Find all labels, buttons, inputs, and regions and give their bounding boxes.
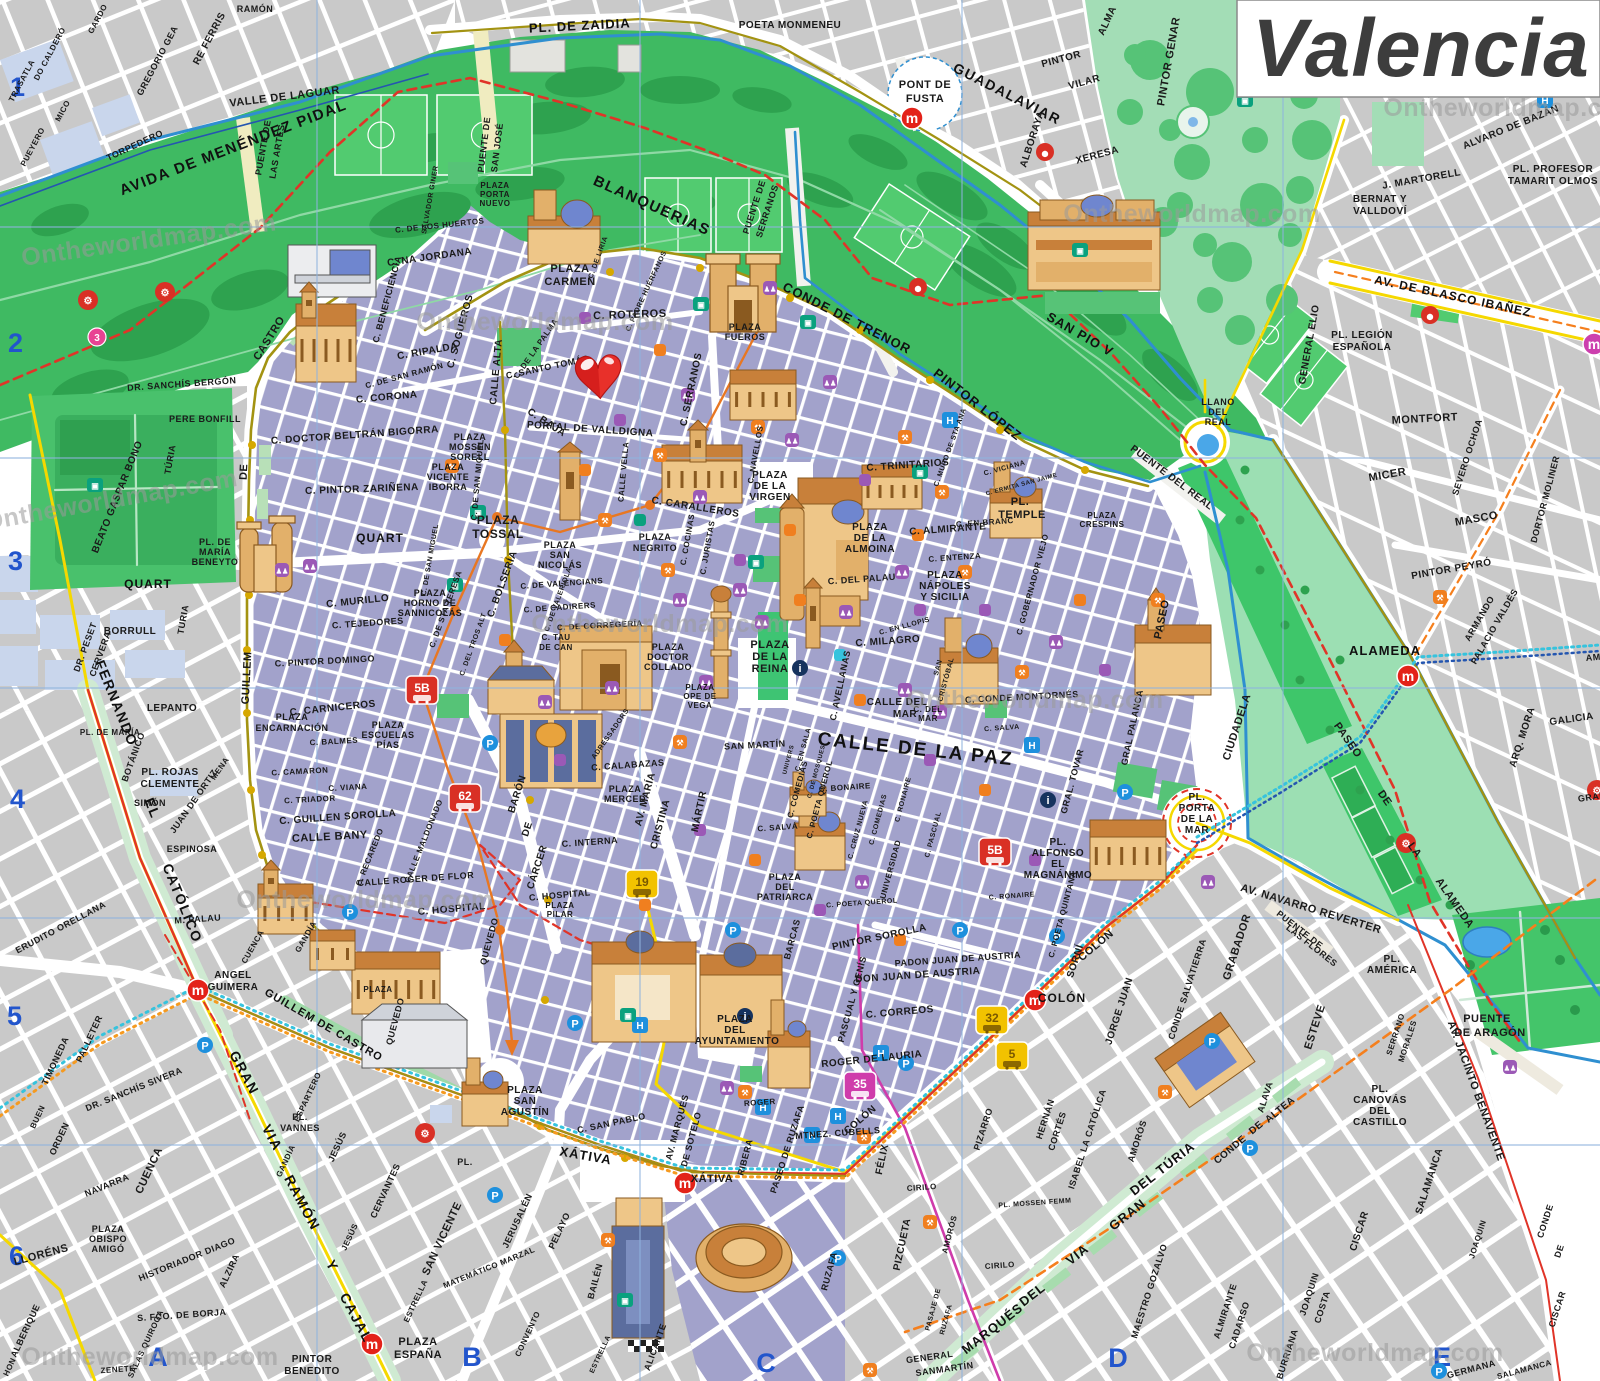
svg-text:BENEDITO: BENEDITO [284,1366,340,1377]
svg-text:♟♟: ♟♟ [896,570,909,578]
svg-text:PLAZA: PLAZA [398,1336,437,1348]
svg-text:DEL: DEL [1208,407,1228,417]
svg-text:SAN: SAN [514,1096,537,1107]
svg-text:IBORRA: IBORRA [429,482,468,492]
svg-text:NÁPOLES: NÁPOLES [919,579,971,592]
svg-text:TOSSAL: TOSSAL [472,527,523,541]
svg-text:▣: ▣ [621,1297,629,1306]
svg-text:ALMOINA: ALMOINA [845,544,895,555]
svg-text:PLAZA: PLAZA [545,901,574,910]
svg-text:OBISPO: OBISPO [89,1234,127,1244]
svg-text:♟♟: ♟♟ [606,686,619,694]
svg-text:⚒: ⚒ [656,452,663,461]
svg-text:⚒: ⚒ [1161,1089,1168,1098]
svg-text:PATRIARCA: PATRIARCA [757,892,813,902]
svg-text:AMÉRICA: AMÉRICA [1367,963,1417,976]
svg-text:Y SICILIA: Y SICILIA [920,592,969,603]
svg-text:PL. ROJAS: PL. ROJAS [141,767,198,778]
svg-text:i: i [1046,795,1049,807]
svg-text:H: H [834,1112,841,1123]
svg-text:P: P [486,739,493,751]
svg-text:▣: ▣ [804,319,812,328]
svg-text:m: m [906,110,918,126]
svg-text:RAMÓN: RAMÓN [237,3,274,14]
svg-text:PERE BONFILL: PERE BONFILL [169,414,241,424]
svg-text:♟♟: ♟♟ [1202,880,1215,888]
svg-text:XÁTIVA: XÁTIVA [691,1172,734,1185]
svg-text:DEL: DEL [775,882,795,892]
svg-text:DE LA: DE LA [752,651,788,663]
svg-text:PL.: PL. [457,1157,473,1167]
svg-text:35: 35 [853,1077,867,1091]
svg-text:ALAMEDA: ALAMEDA [1349,643,1421,658]
svg-text:B: B [462,1342,482,1372]
svg-text:PORTA: PORTA [480,190,510,199]
svg-text:SANNICOLÁS: SANNICOLÁS [398,608,463,618]
svg-text:PLAZA: PLAZA [454,432,487,442]
svg-text:P: P [571,1019,578,1031]
svg-text:m: m [1588,336,1600,352]
svg-text:♟♟: ♟♟ [840,610,853,618]
svg-text:m: m [679,1175,691,1191]
svg-text:PUENTE: PUENTE [1463,1013,1511,1025]
svg-text:PLAZA: PLAZA [729,322,762,332]
svg-text:QUART: QUART [356,531,404,545]
svg-text:i: i [798,663,801,675]
svg-text:PLAZA: PLAZA [639,532,672,542]
svg-text:ANGEL: ANGEL [214,970,252,981]
svg-text:Ontheworldmap.com: Ontheworldmap.com [236,886,493,914]
svg-text:PL.: PL. [1371,1084,1388,1095]
svg-text:AMA: AMA [1585,651,1600,663]
svg-text:⚒: ⚒ [901,434,908,443]
svg-text:PLAZA: PLAZA [750,639,789,651]
svg-text:AYUNTAMIENTO: AYUNTAMIENTO [695,1036,780,1047]
svg-text:⚙: ⚙ [84,296,93,307]
svg-text:4: 4 [10,784,25,814]
svg-text:D: D [1108,1343,1128,1373]
svg-text:FUSTA: FUSTA [906,93,944,105]
svg-text:ESPAÑOLA: ESPAÑOLA [1333,340,1392,353]
svg-text:PLAZA: PLAZA [769,872,802,882]
svg-text:FUEROS: FUEROS [725,332,766,342]
svg-text:⬤: ⬤ [915,286,922,293]
svg-text:AMIGÓ: AMIGÓ [92,1243,125,1254]
svg-text:PINTOR: PINTOR [292,1354,333,1365]
svg-text:PLAZA: PLAZA [652,642,685,652]
svg-text:DEL: DEL [1369,1106,1391,1117]
svg-text:P: P [956,926,963,938]
svg-text:PLAZA: PLAZA [852,522,888,533]
svg-text:PLAZA: PLAZA [507,1085,543,1096]
svg-text:SAN: SAN [550,550,571,560]
svg-text:MAGNÁNIMO: MAGNÁNIMO [1024,868,1092,881]
svg-text:CASTILLO: CASTILLO [1353,1117,1407,1128]
svg-text:HORNO DE: HORNO DE [404,598,457,608]
svg-text:NUEVO: NUEVO [480,199,511,208]
svg-text:P: P [729,926,736,938]
svg-text:ALFONSO: ALFONSO [1032,848,1084,859]
svg-text:PL.: PL. [1011,496,1030,508]
svg-text:♟♟: ♟♟ [824,380,837,388]
svg-text:TAMARIT OLMOS: TAMARIT OLMOS [1508,176,1598,187]
svg-text:⚒: ⚒ [1436,594,1443,603]
svg-text:TEMPLE: TEMPLE [998,509,1046,521]
svg-text:OPE DE: OPE DE [683,692,716,701]
svg-text:⚒: ⚒ [664,567,671,576]
svg-text:VALLDOVÍ: VALLDOVÍ [1353,204,1407,217]
svg-text:PLAZA: PLAZA [414,588,447,598]
svg-text:3: 3 [8,546,23,576]
svg-text:DEL: DEL [724,1025,746,1036]
svg-text:⚒: ⚒ [938,489,945,498]
svg-text:H: H [1028,741,1035,752]
svg-text:⚒: ⚒ [1018,669,1025,678]
svg-text:⚒: ⚒ [926,1219,933,1228]
svg-text:DE: DE [238,463,251,480]
svg-text:PLAZA: PLAZA [927,570,963,581]
svg-text:Ontheworldmap.com: Ontheworldmap.com [906,686,1163,714]
svg-text:Ontheworldmap.com: Ontheworldmap.com [1246,1339,1503,1367]
svg-text:DE LA: DE LA [854,533,887,544]
svg-text:PLAZA: PLAZA [372,720,405,730]
svg-text:PLAZA: PLAZA [276,712,309,722]
svg-text:Ontheworldmap.com: Ontheworldmap.com [531,610,788,638]
svg-text:AGUSTÍN: AGUSTÍN [501,1105,550,1118]
svg-text:Ontheworldmap.com: Ontheworldmap.com [1063,200,1320,228]
svg-text:CANOVÁS: CANOVÁS [1353,1093,1407,1106]
svg-text:PL.: PL. [1383,954,1400,965]
svg-text:PL. DE: PL. DE [199,537,231,547]
svg-text:⚒: ⚒ [601,517,608,526]
svg-text:EL: EL [1051,859,1065,870]
svg-text:PL. PROFESOR: PL. PROFESOR [1513,164,1594,175]
svg-text:ENCARNACIÓN: ENCARNACIÓN [256,722,329,733]
svg-text:♟♟: ♟♟ [1050,640,1063,648]
svg-text:LEPANTO: LEPANTO [147,703,197,714]
svg-text:QUART: QUART [124,577,172,591]
svg-text:SORELL: SORELL [450,452,490,462]
svg-text:♟♟: ♟♟ [304,564,317,572]
svg-text:ESPINOSA: ESPINOSA [167,844,218,854]
svg-text:⚙: ⚙ [161,288,170,299]
svg-text:♟♟: ♟♟ [276,568,289,576]
svg-text:5B: 5B [414,681,430,695]
svg-text:PLAZA: PLAZA [477,513,520,527]
svg-text:COLÓN: COLÓN [1038,990,1086,1005]
svg-text:⚒: ⚒ [741,1089,748,1098]
svg-text:P: P [1246,1144,1253,1156]
svg-text:CLEMENTE: CLEMENTE [141,779,200,790]
svg-text:DE LA: DE LA [1181,814,1214,825]
svg-text:⬤: ⬤ [1042,151,1049,158]
svg-text:CRESPINS: CRESPINS [1080,520,1125,529]
svg-text:PL. LEGIÓN: PL. LEGIÓN [1331,328,1393,341]
svg-text:PILAR: PILAR [547,910,574,919]
svg-text:▣: ▣ [1076,247,1084,256]
svg-text:▣: ▣ [752,559,760,568]
svg-text:PLAZA: PLAZA [717,1014,753,1025]
svg-text:♟♟: ♟♟ [1504,1065,1517,1073]
svg-text:PLAZA: PLAZA [92,1224,125,1234]
svg-text:⚒: ⚒ [604,1237,611,1246]
svg-text:5B: 5B [987,843,1003,857]
svg-text:DE CAN: DE CAN [539,643,573,652]
svg-text:PL.: PL. [1188,792,1205,803]
svg-text:VICENTE: VICENTE [427,472,470,482]
svg-text:DOCTOR: DOCTOR [647,652,689,662]
svg-text:♟♟: ♟♟ [734,588,747,596]
svg-text:PLAZA: PLAZA [432,462,465,472]
svg-text:♟♟: ♟♟ [856,880,869,888]
svg-text:PLAZA: PLAZA [609,784,642,794]
svg-text:32: 32 [985,1011,999,1025]
svg-text:COLLADO: COLLADO [644,662,692,672]
svg-text:▣: ▣ [697,301,705,310]
svg-text:GUIMERA: GUIMERA [208,982,259,993]
svg-text:♟♟: ♟♟ [674,598,687,606]
svg-text:m: m [1402,668,1414,684]
svg-text:BERNAT Y: BERNAT Y [1353,194,1407,205]
svg-text:POETA MONMENEU: POETA MONMENEU [739,20,842,31]
svg-text:PLAZA: PLAZA [550,263,589,275]
svg-text:Ontheworldmap.com: Ontheworldmap.com [416,308,673,336]
svg-text:PLAZA: PLAZA [544,540,577,550]
svg-text:NICOLÁS: NICOLÁS [538,560,582,570]
svg-text:PLAZA: PLAZA [685,683,714,692]
svg-text:Ontheworldmap.com: Ontheworldmap.com [1383,94,1600,122]
svg-text:♟♟: ♟♟ [764,286,777,294]
svg-text:PLAZA: PLAZA [1087,511,1116,520]
svg-text:♟♟: ♟♟ [721,1086,734,1094]
svg-text:♟♟: ♟♟ [539,700,552,708]
svg-text:⬤: ⬤ [1427,314,1434,321]
svg-text:PORTA: PORTA [1179,803,1216,814]
svg-text:VIRGEN: VIRGEN [749,492,790,503]
svg-text:PLAZA: PLAZA [752,470,788,481]
svg-text:ESCUELAS: ESCUELAS [361,730,414,740]
svg-text:Valencia: Valencia [1252,3,1590,94]
svg-text:VANNES: VANNES [280,1123,320,1133]
svg-text:PONT DE: PONT DE [899,79,951,91]
svg-text:PLAZA: PLAZA [480,181,509,190]
svg-text:MAR: MAR [1185,825,1210,836]
svg-text:VEGA: VEGA [688,701,713,710]
svg-text:REAL: REAL [1205,417,1232,427]
svg-text:PÍAS: PÍAS [376,740,399,750]
svg-text:PLAZA: PLAZA [363,985,392,994]
svg-text:DE LA: DE LA [754,481,787,492]
svg-text:C: C [756,1348,776,1378]
svg-text:P: P [1208,1037,1215,1049]
svg-text:PL.: PL. [1049,837,1066,848]
svg-text:MARÍA: MARÍA [199,547,231,557]
svg-text:⚒: ⚒ [676,739,683,748]
svg-text:LLANO: LLANO [1201,397,1235,407]
svg-text:⚙: ⚙ [421,1129,430,1140]
svg-text:P: P [1121,788,1128,800]
svg-text:BENEYTO: BENEYTO [192,557,239,567]
svg-text:▣: ▣ [624,1012,632,1021]
svg-text:m: m [192,982,204,998]
svg-text:REINA: REINA [752,663,789,675]
svg-text:19: 19 [635,875,649,889]
svg-text:▣: ▣ [1241,97,1249,106]
svg-text:P: P [201,1041,208,1053]
svg-text:Ontheworldmap.com: Ontheworldmap.com [21,1343,278,1371]
svg-text:62: 62 [458,789,472,803]
svg-text:ESPAÑA: ESPAÑA [394,1348,442,1361]
svg-text:H: H [946,416,953,427]
svg-text:2: 2 [8,328,23,358]
svg-text:⚒: ⚒ [866,1367,873,1376]
svg-text:3: 3 [94,333,100,344]
svg-text:5: 5 [7,1001,22,1031]
svg-text:P: P [491,1191,498,1203]
svg-text:5: 5 [1009,1047,1016,1061]
svg-text:P: P [1435,1367,1442,1379]
svg-text:♟♟: ♟♟ [786,438,799,446]
svg-text:MOSSEN: MOSSEN [449,442,491,452]
svg-text:MAR: MAR [918,714,938,723]
svg-text:DE ARAGÓN: DE ARAGÓN [1454,1026,1525,1039]
svg-text:H: H [636,1021,643,1032]
svg-text:NEGRITO: NEGRITO [633,543,677,553]
